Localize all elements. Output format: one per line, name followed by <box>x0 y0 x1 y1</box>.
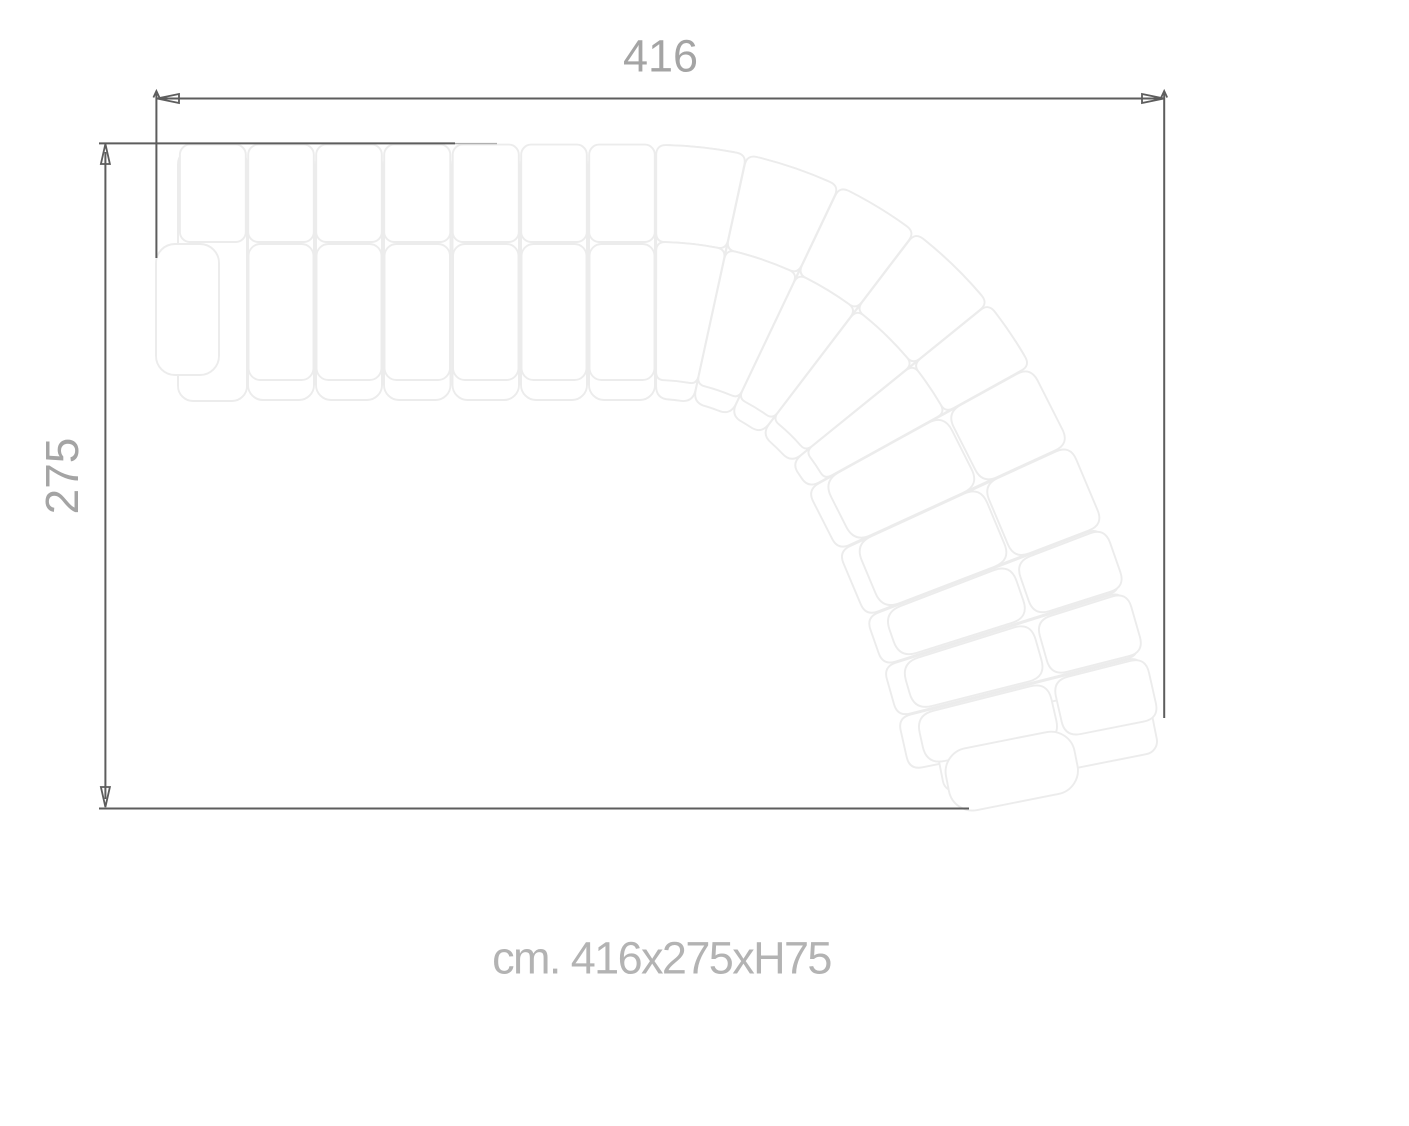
svg-text:275: 275 <box>36 438 88 515</box>
svg-text:cm. 416x275xH75: cm. 416x275xH75 <box>492 933 831 984</box>
svg-text:416: 416 <box>623 31 698 82</box>
